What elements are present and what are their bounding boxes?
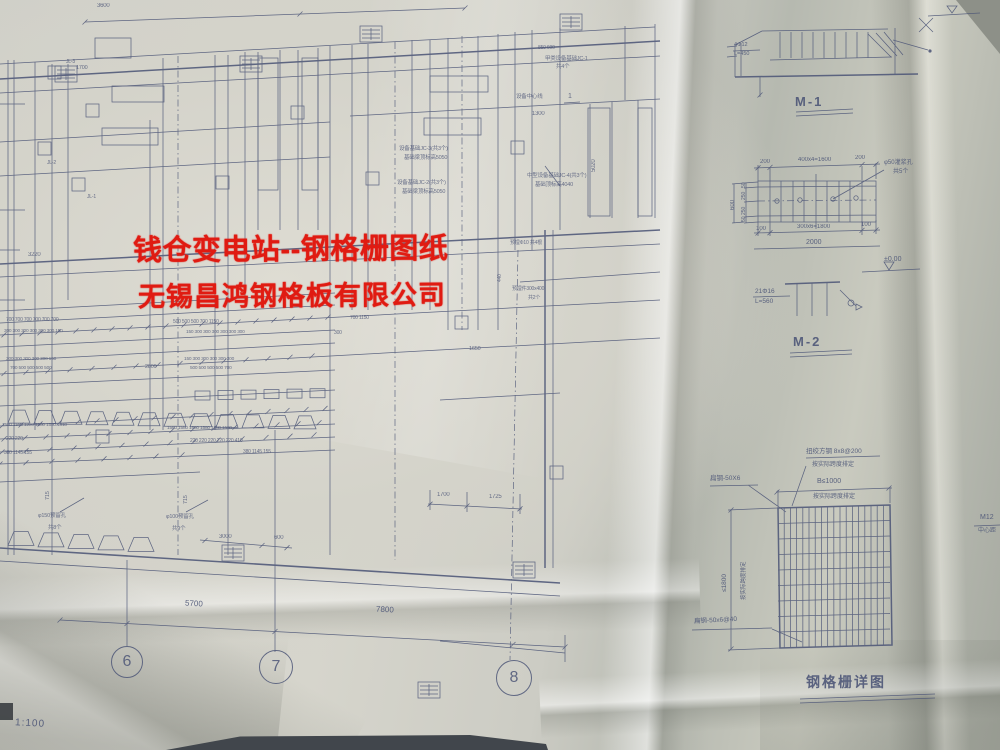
linework	[0, 437, 335, 452]
linework	[68, 534, 94, 548]
linework	[0, 27, 655, 64]
m2-anchor-note-1: 21Φ16	[755, 289, 775, 296]
m2-dim-left-3: 250	[742, 207, 747, 215]
hatched-member	[102, 128, 158, 145]
linework	[120, 443, 125, 448]
linework	[149, 429, 154, 434]
linework	[0, 370, 335, 386]
edge-cut-label-top: M12	[980, 514, 994, 521]
linework	[134, 364, 139, 369]
linework	[95, 418, 100, 423]
detail-title-m1: M-1	[795, 95, 823, 108]
grating-note-top-1: 扭绞方钢 8x8@200	[806, 449, 862, 456]
linework	[0, 472, 200, 482]
linework	[209, 412, 214, 417]
steel-column-symbol	[418, 682, 440, 698]
linework	[244, 357, 249, 362]
axis-dim-6-7: 5700	[185, 600, 203, 609]
grating-note-top-2: 按实际跨度排定	[812, 462, 854, 468]
linework	[112, 365, 117, 370]
linework	[133, 416, 138, 421]
linework	[222, 359, 227, 364]
linework	[350, 99, 660, 116]
linework	[310, 354, 315, 359]
m2-dim-top-2: 400x4=1600	[798, 157, 831, 163]
linework	[171, 414, 176, 419]
linework	[154, 454, 159, 459]
plan-scale-label: 1:100	[15, 718, 46, 730]
linework	[38, 533, 64, 547]
column-symbol	[86, 104, 99, 117]
steel-column-symbol	[240, 56, 262, 72]
linework	[102, 456, 107, 461]
detail-title-m2: M-2	[793, 335, 821, 348]
m1-bar-note-2: L=450	[734, 52, 749, 58]
m2-dim-bot-3: 100	[861, 222, 871, 228]
m1-bar-note-1: 4Φ12	[734, 43, 748, 49]
grating-dim-width-note: 按实际跨度排定	[813, 494, 855, 500]
linework	[144, 442, 149, 447]
linework	[0, 390, 335, 406]
linework	[0, 450, 335, 464]
linework	[212, 426, 217, 431]
linework	[156, 362, 161, 367]
linework	[0, 122, 330, 142]
linework	[520, 272, 660, 282]
steel-column-symbol	[560, 14, 582, 30]
hatched-member	[430, 76, 488, 92]
m2-dim-left-4: 50	[742, 216, 747, 222]
linework	[128, 537, 154, 551]
linework	[98, 536, 124, 550]
detail-title-grating: 钢格栅详图	[806, 675, 886, 689]
m2-dim-left-1: 50	[742, 182, 747, 188]
hatched-member	[302, 58, 318, 190]
linework	[34, 411, 56, 424]
m2-hole-note-1: φ50灌浆孔	[884, 160, 913, 166]
linework	[86, 412, 108, 425]
linework	[72, 446, 77, 451]
grating-note-left-top: 扁钢-50X6	[710, 476, 740, 483]
title-stamp-fragment	[0, 703, 13, 720]
linework	[288, 434, 293, 439]
hatched-member	[424, 118, 481, 135]
m2-dim-left-total: 600	[730, 200, 736, 210]
linework	[152, 415, 157, 420]
column-symbol	[72, 178, 85, 191]
m2-hole-note-2: 共5个	[893, 169, 908, 175]
photo-of-drawing: 钱仓变电站--钢格栅图纸 无锡昌鸿钢格板有限公司 36001700JL-3JL-…	[0, 0, 1000, 750]
watermark-line-1: 钱仓变电站--钢格栅图纸	[133, 235, 449, 266]
grid-bubble-8: 8	[496, 660, 532, 696]
linework	[8, 410, 30, 423]
column-symbol	[455, 316, 468, 329]
m2-dim-top-1: 200	[760, 159, 770, 165]
linework	[90, 366, 95, 371]
watermark-line-2: 无锡昌鸿钢格板有限公司	[138, 282, 446, 311]
linework	[170, 428, 175, 433]
hatched-member	[638, 108, 652, 216]
column-symbol	[511, 141, 524, 154]
steel-column-symbol	[222, 545, 244, 561]
steel-column-symbol	[513, 562, 535, 578]
m2-dim-bot-2: 300x6=1800	[797, 224, 830, 230]
linework	[0, 548, 560, 583]
m2-anchor-note-2: L=560	[755, 299, 773, 306]
axis-dim-7-8: 7800	[376, 606, 394, 615]
linework	[294, 416, 316, 429]
m2-elevation: ±0.00	[884, 256, 901, 263]
linework	[312, 432, 317, 437]
steel-column-symbol	[360, 26, 382, 42]
linework	[195, 391, 210, 400]
linework	[240, 436, 245, 441]
grid-bubble-7: 7	[259, 650, 293, 684]
column-symbol	[96, 430, 109, 443]
linework	[440, 393, 560, 400]
linework	[96, 444, 101, 449]
linework	[8, 531, 34, 545]
linework	[128, 430, 133, 435]
grating-dim-width: B≤1000	[817, 478, 841, 485]
linework	[128, 455, 133, 460]
linework	[288, 355, 293, 360]
column-symbol	[216, 176, 229, 189]
grating-dim-height-note: 按实际跨度排定	[742, 561, 748, 600]
m2-dim-left-2: 250	[742, 192, 747, 200]
m2-dim-bot-1: 100	[756, 226, 766, 232]
linework	[216, 414, 238, 427]
linework	[200, 360, 205, 365]
edge-cut-label-bottom: 中心距	[978, 528, 996, 534]
linework	[308, 316, 313, 321]
linework	[264, 435, 269, 440]
grating-dim-height: ≤1800	[722, 574, 729, 592]
linework	[242, 415, 264, 428]
linework	[266, 356, 271, 361]
linework	[310, 389, 325, 398]
linework	[264, 390, 279, 399]
column-symbol	[38, 142, 51, 155]
column-symbol	[550, 466, 563, 479]
linework	[287, 389, 302, 398]
hatched-member	[112, 86, 164, 102]
linework	[76, 458, 81, 463]
m2-dim-bot-total: 2000	[806, 239, 822, 246]
column-symbol	[48, 66, 61, 79]
steel-column-symbol	[55, 66, 77, 82]
linework	[0, 157, 330, 176]
grid-bubble-6: 6	[111, 646, 143, 678]
drawing-linework	[0, 0, 1000, 750]
hatched-member	[95, 38, 131, 58]
linework	[112, 412, 134, 425]
hatched-member	[588, 108, 610, 216]
m2-dim-top-3: 200	[855, 155, 865, 161]
linework	[191, 427, 196, 432]
